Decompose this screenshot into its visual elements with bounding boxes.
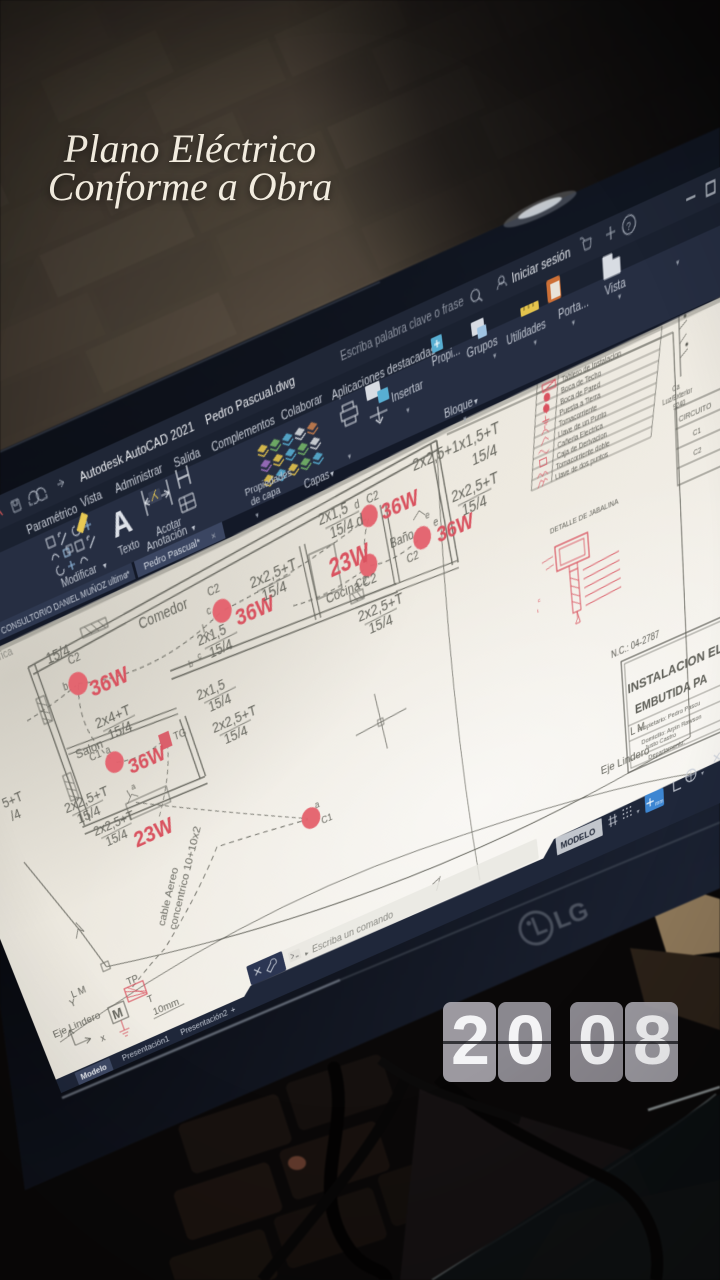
svg-text:?: ? <box>626 220 631 235</box>
svg-text:▾: ▾ <box>636 808 639 816</box>
svg-text:▾: ▾ <box>701 769 704 777</box>
